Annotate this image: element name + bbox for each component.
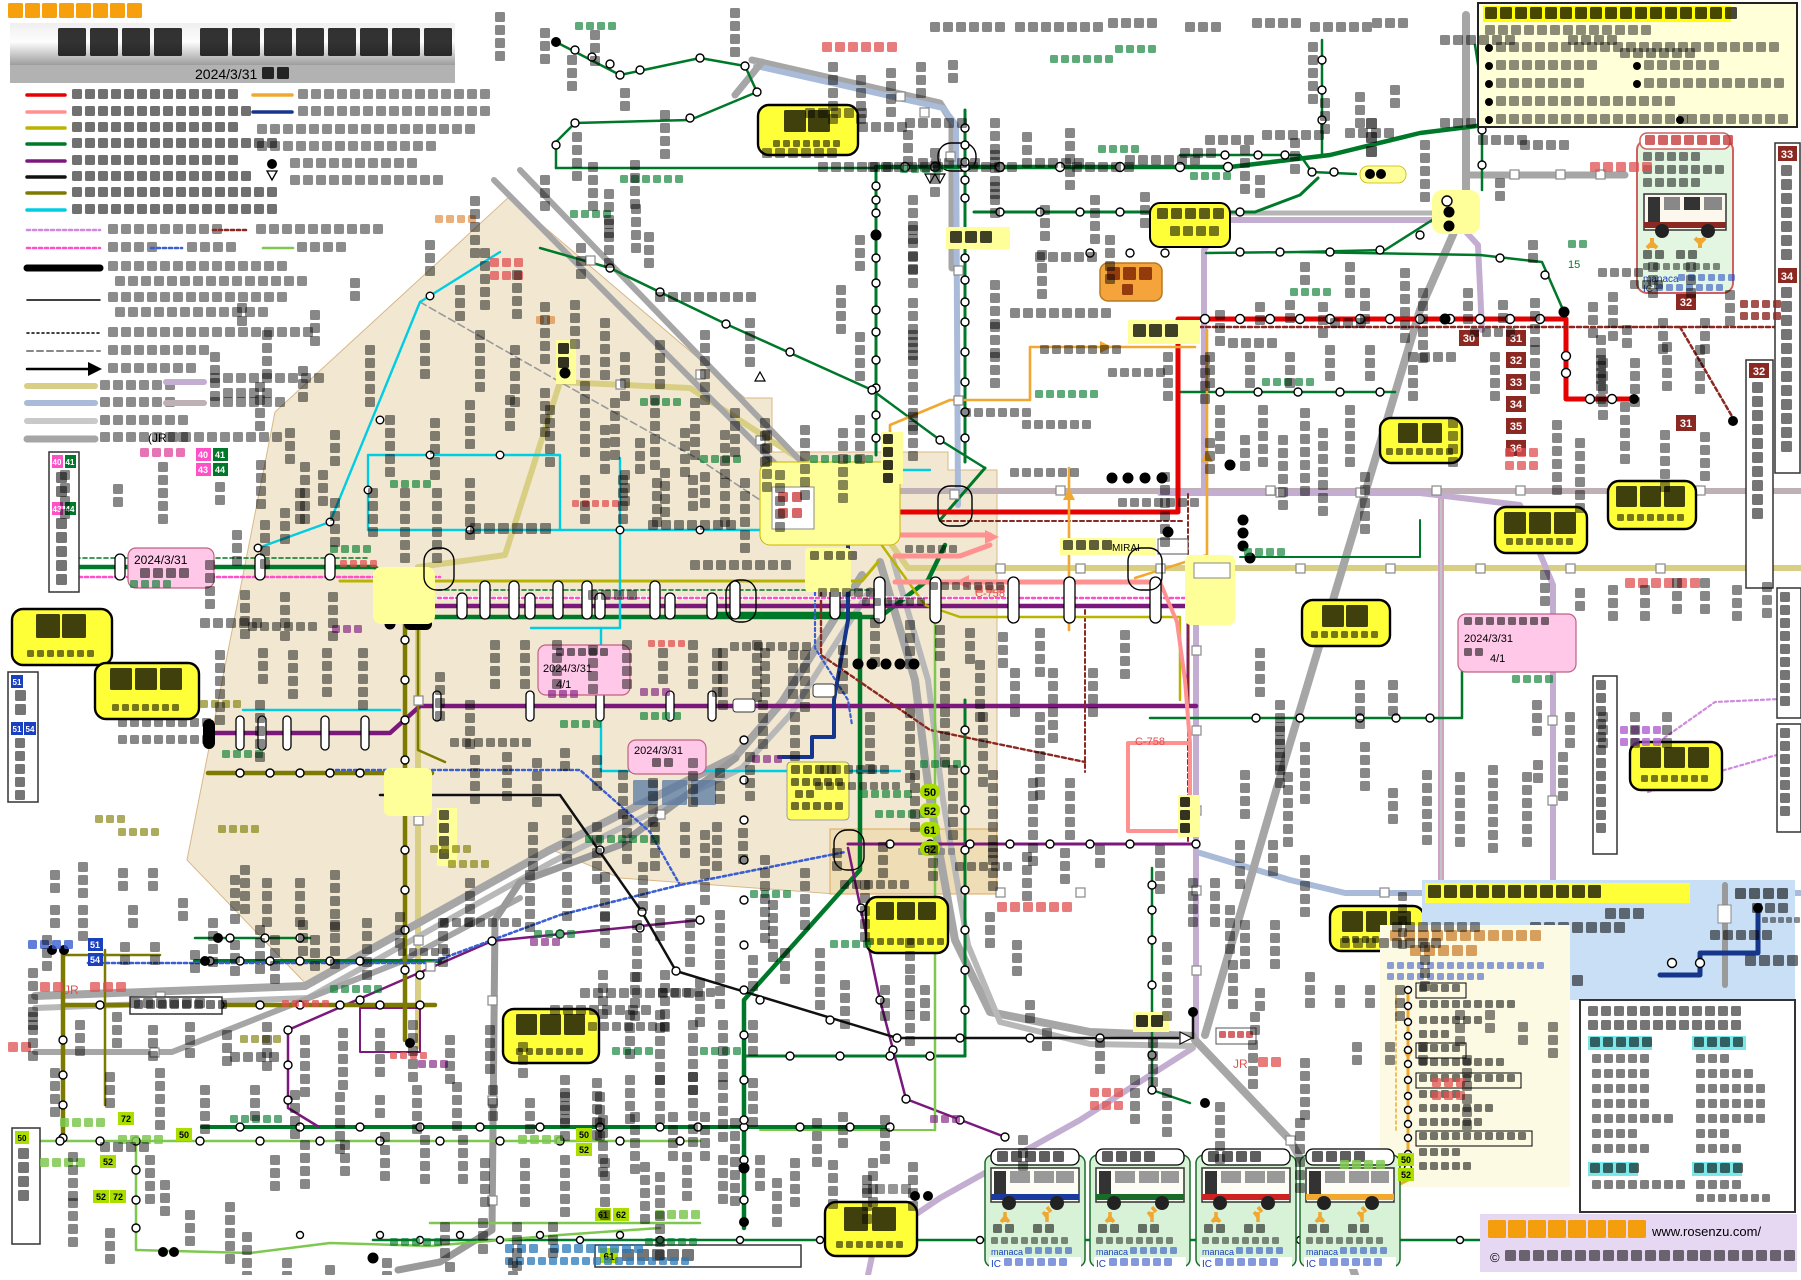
svg-text:51: 51 [13, 678, 22, 687]
svg-text:manaca: manaca [1306, 1247, 1338, 1257]
svg-text:72: 72 [121, 1114, 131, 1124]
svg-text:40: 40 [53, 458, 62, 467]
svg-text:34: 34 [1510, 399, 1523, 411]
svg-text:32: 32 [1510, 355, 1522, 367]
svg-text:32: 32 [1753, 366, 1765, 378]
svg-text:61: 61 [924, 825, 936, 837]
svg-text:52: 52 [96, 1192, 106, 1202]
svg-text:15: 15 [1568, 259, 1580, 271]
svg-text:54: 54 [90, 955, 100, 965]
svg-text:43: 43 [198, 465, 208, 475]
svg-text:JR: JR [1233, 1057, 1248, 1071]
svg-text:2024/3/31: 2024/3/31 [634, 745, 683, 757]
svg-text:(JR: (JR [148, 431, 167, 445]
svg-text:IC: IC [1306, 1259, 1316, 1270]
svg-text:www.rosenzu.com/: www.rosenzu.com/ [1651, 1224, 1761, 1239]
svg-text:2024/3/31: 2024/3/31 [1464, 633, 1513, 645]
svg-text:52: 52 [103, 1157, 113, 1167]
svg-text:72: 72 [113, 1192, 123, 1202]
svg-text:41: 41 [215, 450, 225, 460]
svg-text:51: 51 [13, 725, 22, 734]
svg-text:©: © [1490, 1250, 1500, 1265]
svg-text:41: 41 [66, 458, 75, 467]
svg-text:52: 52 [579, 1145, 589, 1155]
svg-text:33: 33 [1510, 377, 1522, 389]
svg-text:manaca: manaca [991, 1247, 1023, 1257]
svg-text:2024/3/31: 2024/3/31 [195, 66, 257, 82]
svg-text:33: 33 [1781, 149, 1793, 161]
svg-text:4/1: 4/1 [1490, 653, 1505, 665]
svg-text:2024/3/31: 2024/3/31 [134, 553, 188, 567]
svg-text:52: 52 [1401, 1170, 1411, 1180]
svg-text:C-758: C-758 [1135, 736, 1165, 748]
svg-text:52: 52 [924, 806, 936, 818]
svg-text:62: 62 [616, 1210, 626, 1220]
svg-text:50: 50 [924, 787, 936, 799]
svg-text:IC: IC [1096, 1259, 1106, 1270]
svg-text:IC: IC [1202, 1259, 1212, 1270]
svg-text:44: 44 [215, 465, 225, 475]
svg-text:50: 50 [18, 1134, 27, 1143]
svg-text:31: 31 [1680, 418, 1692, 430]
svg-text:51: 51 [90, 940, 100, 950]
svg-text:2024/3/31: 2024/3/31 [543, 663, 592, 675]
svg-text:54: 54 [26, 725, 35, 734]
svg-text:35: 35 [1510, 421, 1522, 433]
svg-text:JR: JR [64, 983, 79, 997]
svg-text:32: 32 [1680, 297, 1692, 309]
svg-text:manaca: manaca [1202, 1247, 1234, 1257]
svg-text:50: 50 [1401, 1155, 1411, 1165]
svg-text:50: 50 [579, 1130, 589, 1140]
svg-text:manaca: manaca [1096, 1247, 1128, 1257]
svg-text:IC: IC [991, 1259, 1001, 1270]
svg-text:34: 34 [1781, 271, 1794, 283]
svg-text:50: 50 [179, 1130, 189, 1140]
svg-text:40: 40 [198, 450, 208, 460]
